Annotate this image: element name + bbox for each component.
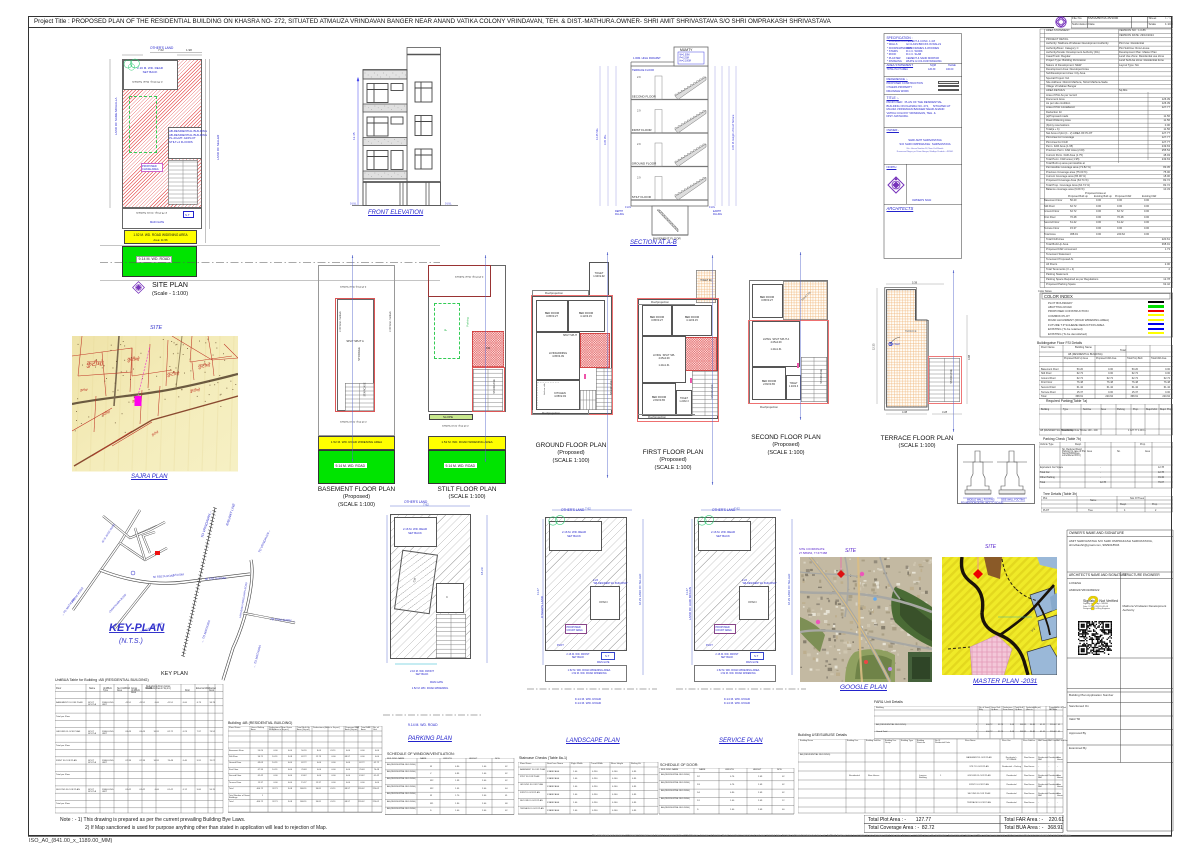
svg-text:673.00M: 673.00M [173, 572, 185, 577]
svg-text:5.38: 5.38 [912, 280, 918, 284]
svg-text:2.9: 2.9 [637, 75, 641, 79]
svg-text:12.45 Mts.: 12.45 Mts. [595, 128, 599, 140]
svg-text:FOUNDATION DETAIL (NOT TO SCAL: FOUNDATION DETAIL (NOT TO SCALE) [961, 502, 1004, 505]
svg-text:TERRACE FLOOR: TERRACE FLOOR [632, 68, 654, 72]
svg-text:0 LVL: 0 LVL [625, 206, 632, 209]
svg-text:कुटीमो: कुटीमो [79, 388, 88, 392]
svg-text:P=0.25M: P=0.25M [680, 58, 689, 60]
svg-text:कुटीमो: कुटीमो [85, 359, 103, 368]
svg-text:12.33: 12.33 [872, 343, 876, 350]
svg-text:50 FEETA ROAD: 50 FEETA ROAD [205, 576, 227, 581]
svg-text:1.00M. HIGH PARAPET: 1.00M. HIGH PARAPET [633, 56, 661, 60]
svg-text:GROUND FLOOR: GROUND FLOOR [632, 162, 657, 166]
svg-text:MIDDLE WALL FOOTING: MIDDLE WALL FOOTING [967, 499, 995, 502]
svg-text:0 LVL: 0 LVL [709, 206, 716, 209]
svg-text:7.62: 7.62 [585, 506, 591, 510]
svg-text:18.29 LAND OF SELLER: 18.29 LAND OF SELLER [638, 574, 642, 605]
svg-text:18.29: 18.29 [480, 567, 484, 575]
svg-text:12.45: 12.45 [352, 132, 356, 140]
svg-text:SIDE WALL FOOTING: SIDE WALL FOOTING [1001, 499, 1025, 502]
svg-text:1.98: 1.98 [186, 48, 192, 52]
svg-text:W=1.00M: W=1.00M [680, 55, 690, 57]
svg-text:Ht=2.100M: Ht=2.100M [680, 60, 691, 63]
svg-text:2.9: 2.9 [637, 176, 641, 180]
svg-text:0 LVL: 0 LVL [445, 202, 452, 206]
svg-text:FILLING: FILLING [713, 213, 722, 216]
svg-text:TO VRINDAVAN→: TO VRINDAVAN→ [257, 529, 271, 553]
svg-text:3.28: 3.28 [942, 410, 948, 414]
svg-text:50 FEETA ROAD: 50 FEETA ROAD [153, 574, 175, 579]
svg-text:MUMTY: MUMTY [680, 48, 693, 52]
svg-text:7.62: 7.62 [158, 48, 164, 52]
svg-text:FILLING: FILLING [615, 213, 624, 216]
svg-text:कुटीमो: कुटीमो [166, 370, 180, 378]
svg-text:← TO MATHURA: ← TO MATHURA [252, 645, 262, 669]
svg-text:RAILWAY LINE: RAILWAY LINE [225, 502, 236, 526]
svg-text:0 LVL: 0 LVL [350, 202, 357, 206]
svg-text:18.29 LAND OF SELLER: 18.29 LAND OF SELLER [787, 574, 791, 605]
svg-text:3.35 Mts.: 3.35 Mts. [603, 134, 607, 145]
svg-text:TO PANI GAON →: TO PANI GAON → [270, 617, 295, 623]
svg-text:60 M. WIDE ROAD: 60 M. WIDE ROAD [100, 523, 116, 544]
svg-text:कुटीमो: कुटीमो [126, 356, 140, 363]
svg-text:STILT FLOOR: STILT FLOOR [632, 195, 652, 199]
svg-text:3.35 M. Height of Roof Terrace: 3.35 M. Height of Roof Terrace [731, 114, 735, 150]
svg-text:2.9: 2.9 [637, 109, 641, 113]
svg-text:FIRST FLOOR: FIRST FLOOR [632, 128, 653, 132]
svg-text:2.9: 2.9 [637, 142, 641, 146]
svg-text:4.88: 4.88 [967, 354, 971, 360]
svg-text:←TO MATHURA: ←TO MATHURA [61, 597, 76, 617]
svg-text:SECOND FLOOR: SECOND FLOOR [632, 95, 657, 99]
svg-text:← TO MATHURA: ← TO MATHURA [200, 620, 211, 643]
svg-text:CHHATIKARA ROAD: CHHATIKARA ROAD [108, 593, 128, 614]
svg-text:4.38: 4.38 [902, 410, 908, 414]
svg-text:11.47: 11.47 [536, 588, 540, 595]
